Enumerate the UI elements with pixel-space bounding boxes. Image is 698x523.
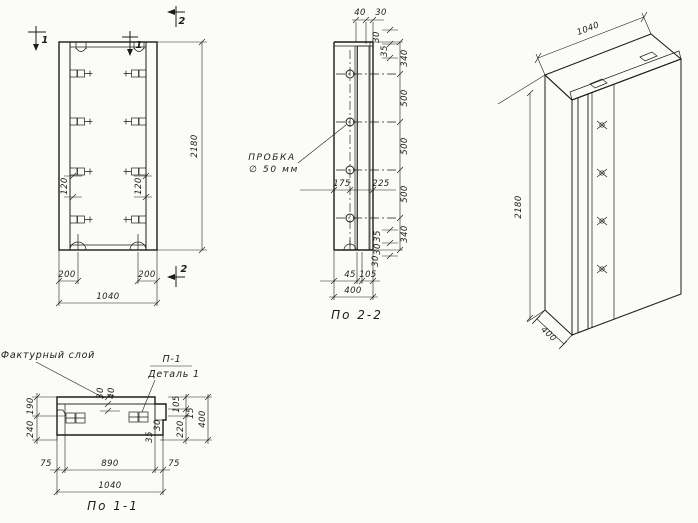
chain-ext-lines — [373, 42, 403, 250]
detail-1-1-title: По 1-1 — [87, 499, 139, 513]
wall-left-hatch — [59, 42, 70, 250]
wall-right-hatch — [146, 42, 157, 250]
dim-loop-left: 120 — [60, 177, 70, 194]
cut-label-1: 1 — [41, 35, 48, 46]
wall-inner-lines — [70, 42, 146, 250]
corner-element-hatch — [155, 404, 166, 420]
dim-edge-top-30: 30 — [372, 31, 382, 43]
dim-depth: 400 — [344, 286, 361, 296]
detail-outline — [57, 397, 166, 435]
dim-right-105: 105 — [172, 395, 182, 412]
cut-label-2: 2 — [178, 16, 185, 27]
axon-plug-mark — [597, 121, 607, 129]
detail-ref-p1: П-1 — [162, 354, 181, 365]
dim-bot-75-left: 75 — [40, 459, 52, 469]
dim-edge-bot-35: 35 — [373, 230, 383, 242]
plug-axis-lines — [336, 74, 398, 218]
detail-leader-line — [142, 380, 155, 412]
view-detail-1-1: Фактурный слой П-1 Деталь 1 190 240 30 4… — [1, 350, 212, 513]
embed-plate — [70, 216, 93, 223]
axon-front-verticals — [578, 84, 614, 333]
cut-mark-2-top: 2 — [167, 6, 186, 27]
panel-outline — [59, 42, 157, 250]
view-elevation: 120 120 2180 200 200 1040 1 1 2 2 — [28, 6, 207, 306]
bottom-hook-symbol — [344, 240, 356, 250]
embed-plate — [70, 70, 93, 77]
embed-plate — [124, 70, 147, 77]
dim-edge-bot-30: 30 — [373, 243, 383, 255]
lifting-loop-bottom-right — [130, 234, 146, 250]
view-axonometric: 1040 2180 400 — [498, 12, 681, 349]
cut-mark-1-left: 1 — [28, 26, 49, 51]
view-section-2-2: 40 30 30 35 340 500 500 500 340 175 225 … — [248, 8, 410, 322]
dim-width: 1040 — [96, 292, 119, 302]
facing-layer-hatch — [358, 46, 370, 250]
dim-elem-30: 30 — [153, 419, 163, 431]
embed-plate — [124, 216, 147, 223]
cut-mark-1-right: 1 — [122, 31, 143, 56]
technical-drawing-svg: 120 120 2180 200 200 1040 1 1 2 2 — [0, 0, 698, 523]
facing-layer-label: Фактурный слой — [1, 350, 95, 361]
axon-plug-mark — [597, 217, 607, 225]
dim-mid-30: 30 — [96, 387, 106, 399]
dim-loop-right: 120 — [134, 177, 144, 194]
dim-mid-40: 40 — [107, 387, 117, 399]
chain-340-top: 340 — [400, 49, 410, 66]
dim-bot-890: 890 — [101, 459, 118, 469]
dim-bot-1040: 1040 — [98, 481, 121, 491]
dim-right-15: 15 — [186, 407, 196, 419]
embed-plate — [124, 168, 147, 175]
detail-inner-lines — [57, 404, 155, 435]
axon-plug-mark — [597, 169, 607, 177]
dim-hook-left: 200 — [58, 270, 75, 280]
cut-label-1: 1 — [135, 40, 142, 51]
dim-right-220: 220 — [176, 420, 186, 437]
chain-500-c: 500 — [400, 185, 410, 202]
drawing-sheet: 120 120 2180 200 200 1040 1 1 2 2 — [0, 0, 698, 523]
chain-340-bot: 340 — [400, 225, 410, 242]
plug-label-line2: ∅ 50 мм — [249, 165, 299, 175]
dim-top-30: 30 — [375, 8, 387, 18]
axon-facing-strip — [578, 94, 588, 333]
dim-left-190: 190 — [26, 397, 36, 414]
plug-leader-line — [298, 125, 346, 163]
cut-label-2: 2 — [180, 264, 187, 275]
dim-elem-35: 35 — [145, 431, 155, 443]
cut-mark-2-bottom: 2 — [167, 264, 188, 287]
dim-height: 2180 — [190, 134, 200, 157]
plug-label-line1: ПРОБКА — [248, 153, 296, 163]
axon-plug-mark — [597, 265, 607, 273]
dim-mid-225: 225 — [372, 179, 389, 189]
dim-right-400: 400 — [198, 410, 208, 427]
dim-bot-45: 45 — [344, 270, 356, 280]
facing-leader-line — [36, 362, 104, 398]
section-2-2-title: По 2-2 — [331, 308, 383, 322]
dim-edge-top-35: 35 — [380, 45, 390, 57]
dim-mid-175: 175 — [333, 179, 350, 189]
chain-500-b: 500 — [400, 137, 410, 154]
embed-plate-left — [66, 413, 85, 423]
dim-hook-right: 200 — [138, 270, 155, 280]
dim-bot-105: 105 — [359, 270, 376, 280]
axon-top-facing-band — [570, 51, 681, 100]
chain-500-a: 500 — [400, 89, 410, 106]
dim-left-lines — [32, 393, 65, 444]
axon-top-opening-2 — [640, 52, 657, 61]
embed-plate — [70, 118, 93, 125]
detail-ref-label: Деталь 1 — [147, 369, 200, 380]
lifting-loop-bottom-left — [70, 234, 86, 250]
facing-band-hatch — [57, 397, 155, 404]
dim-bot-75-right: 75 — [168, 459, 180, 469]
axon-dim-height: 2180 — [514, 195, 524, 218]
axon-dim-depth: 400 — [539, 325, 559, 344]
dim-top-40: 40 — [354, 8, 366, 18]
dim-left-240: 240 — [26, 420, 36, 437]
dim-bot-30: 30 — [371, 255, 381, 267]
axon-left-face — [545, 75, 572, 335]
embed-plate-right — [129, 412, 148, 422]
embed-plate — [124, 118, 147, 125]
embed-plate — [70, 168, 93, 175]
